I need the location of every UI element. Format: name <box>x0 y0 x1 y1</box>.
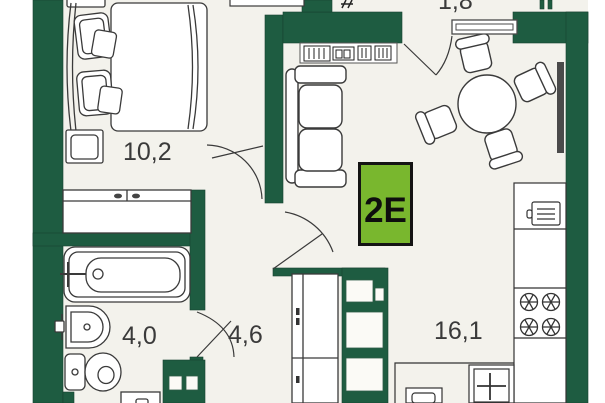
drawer-handle-icon <box>132 194 140 199</box>
toilet-icon <box>65 353 121 391</box>
bedroom-area-label: 10,2 <box>123 140 172 165</box>
dresser <box>63 190 191 233</box>
wall-right <box>566 12 588 403</box>
dishwasher-icon <box>406 388 442 403</box>
unit-type-badge: 2E <box>358 162 413 246</box>
floor-plan: 10,2 4,0 4,6 16,1 1,8 2E <box>0 0 605 403</box>
floor-plan-drawing <box>0 0 605 403</box>
unit-type-label: 2E <box>364 191 407 231</box>
kitchen-sink-icon <box>469 365 514 403</box>
wall-top-stub <box>302 0 332 12</box>
washing-machine-icon <box>121 392 160 403</box>
wall-top <box>283 12 402 43</box>
balcony-wall-fragment <box>540 0 544 9</box>
wardrobe-handle-icon <box>296 308 300 315</box>
hallway-area-label: 4,6 <box>228 323 263 348</box>
pillow-icon <box>91 29 117 58</box>
wardrobe <box>292 274 338 403</box>
kitchen-living-area-label: 16,1 <box>434 319 483 344</box>
balcony-area-label: 1,8 <box>438 0 473 14</box>
wall-left <box>33 0 63 403</box>
radiator-panel <box>557 62 564 153</box>
wardrobe-handle-icon <box>296 376 300 383</box>
dining-table-icon <box>458 75 516 133</box>
bathroom-area-label: 4,0 <box>122 324 157 349</box>
nightstand-icon <box>67 0 105 7</box>
cut-off-furniture <box>230 0 304 6</box>
pillow-icon <box>97 86 122 115</box>
balcony-wall-fragment <box>548 0 552 9</box>
kitchen-counter-right <box>514 183 566 403</box>
wardrobe-handle-icon <box>296 318 300 325</box>
wall-bathroom-right <box>190 190 205 310</box>
wall-bedroom-bathroom <box>33 233 193 246</box>
drawer-handle-icon <box>114 194 122 199</box>
oven-icon <box>527 202 560 225</box>
nightstand <box>66 130 103 163</box>
countertop-appliances <box>304 46 391 61</box>
wall-stub-bottom-left <box>63 392 74 403</box>
wall-bedroom-living <box>265 15 283 203</box>
bathtub-icon <box>60 247 190 302</box>
